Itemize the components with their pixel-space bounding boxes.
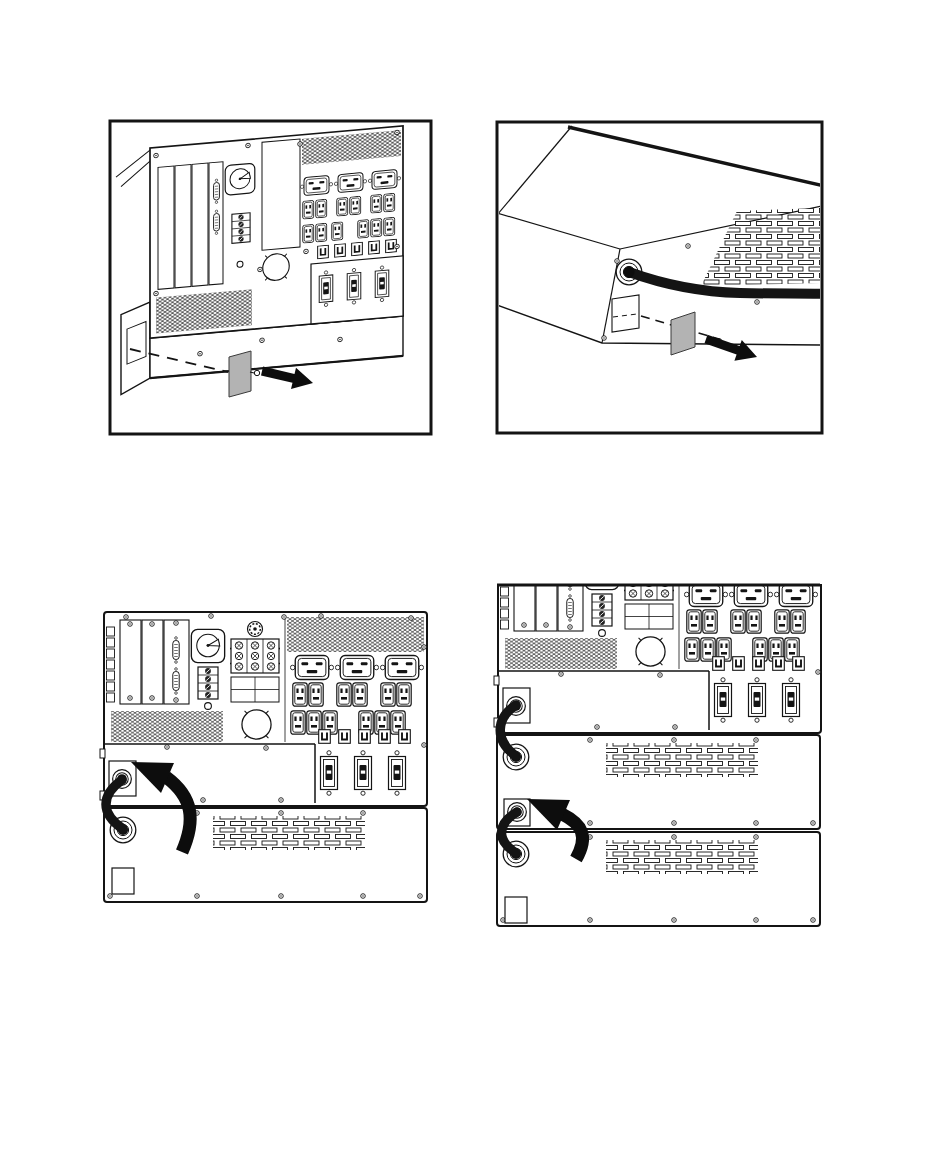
diagram-canvas bbox=[0, 0, 950, 1162]
battery-pack-2 bbox=[497, 832, 820, 926]
figure-battery-pack-corner-knockout-removal bbox=[497, 122, 824, 433]
square-knockout bbox=[612, 295, 639, 332]
manual-page bbox=[0, 0, 950, 1162]
square-knockout bbox=[505, 897, 527, 923]
figure-ups-with-two-battery-packs bbox=[494, 539, 821, 926]
rotary-switch-icon bbox=[225, 163, 255, 195]
battery-pack bbox=[104, 808, 427, 902]
screw-icon bbox=[254, 370, 259, 375]
figure-ups-rear-knockout-removal bbox=[110, 121, 431, 434]
fan-knockout-icon bbox=[263, 253, 289, 282]
ups-rear-panel bbox=[494, 539, 821, 733]
side-knockout bbox=[127, 321, 146, 364]
knockout-cover-plate bbox=[671, 312, 695, 355]
figure-ups-with-one-battery-pack bbox=[100, 612, 427, 902]
removal-arrow-icon bbox=[261, 367, 313, 390]
terminal-block-icon bbox=[232, 213, 250, 244]
knockout-cover-plate bbox=[229, 351, 251, 397]
square-knockout bbox=[112, 868, 134, 894]
blank-panel bbox=[262, 139, 300, 250]
ups-unit-perspective bbox=[116, 126, 403, 395]
